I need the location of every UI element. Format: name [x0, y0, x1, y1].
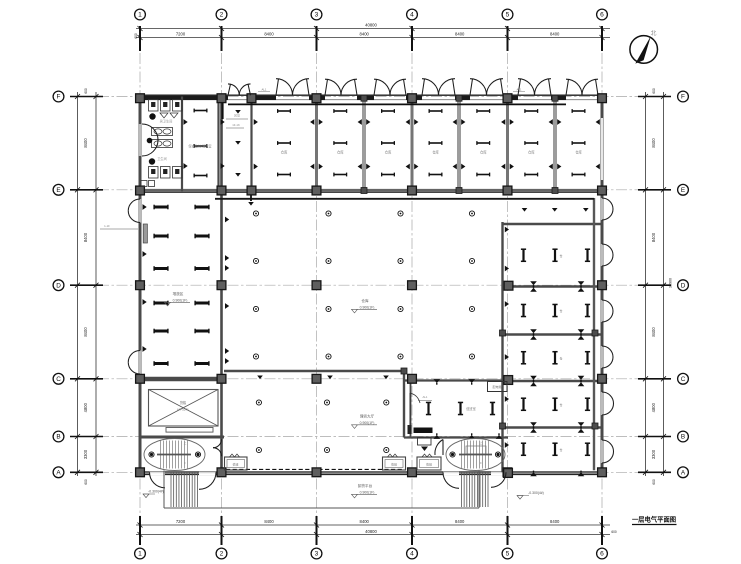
svg-text:8400: 8400	[651, 232, 656, 242]
svg-text:3300: 3300	[83, 449, 88, 459]
svg-text:仓库: 仓库	[337, 150, 344, 155]
svg-text:值班室: 值班室	[466, 406, 476, 411]
svg-text:1-1F: 1-1F	[104, 224, 110, 228]
svg-text:上: 上	[480, 441, 483, 445]
svg-text:堆放区: 堆放区	[173, 291, 184, 296]
svg-text:4800: 4800	[651, 402, 656, 412]
svg-text:3300: 3300	[651, 449, 656, 459]
svg-text:C: C	[56, 376, 61, 383]
svg-text:仓: 仓	[559, 447, 562, 452]
svg-text:600: 600	[84, 88, 88, 94]
svg-text:卸货平台: 卸货平台	[358, 483, 373, 488]
svg-text:8400: 8400	[550, 32, 560, 37]
svg-text:D: D	[56, 282, 61, 289]
svg-text:仓库: 仓库	[385, 150, 392, 155]
svg-text:上: 上	[184, 441, 187, 445]
svg-text:F: F	[184, 461, 186, 465]
svg-text:4800: 4800	[83, 402, 88, 412]
svg-text:40800: 40800	[365, 23, 377, 28]
svg-text:北: 北	[651, 29, 657, 37]
svg-text:2: 2	[220, 12, 224, 19]
svg-text:仓库: 仓库	[575, 150, 582, 155]
svg-text:B: B	[681, 434, 685, 441]
svg-text:E: E	[681, 187, 685, 194]
svg-text:C: C	[681, 376, 686, 383]
svg-text:600: 600	[652, 88, 656, 94]
svg-text:8400: 8400	[651, 327, 656, 337]
svg-text:AL1: AL1	[423, 395, 428, 399]
svg-text:仓库: 仓库	[281, 150, 288, 155]
svg-text:6: 6	[600, 551, 604, 558]
svg-text:兄见: 兄见	[234, 114, 240, 118]
svg-text:D: D	[681, 282, 686, 289]
svg-text:8400: 8400	[550, 519, 560, 524]
svg-text:600: 600	[84, 479, 88, 485]
svg-text:F: F	[681, 94, 685, 101]
svg-text:-0.300(4#): -0.300(4#)	[148, 490, 164, 494]
svg-text:7200: 7200	[176, 519, 186, 524]
svg-text:600: 600	[611, 530, 617, 534]
svg-text:仓: 仓	[559, 355, 562, 360]
svg-text:8400: 8400	[264, 519, 274, 524]
svg-text:仓库: 仓库	[480, 150, 487, 155]
svg-text:8400: 8400	[264, 32, 274, 37]
svg-text:8400: 8400	[360, 519, 370, 524]
svg-text:值班: 值班	[391, 462, 397, 467]
svg-text:1F-1K: 1F-1K	[232, 123, 240, 127]
svg-text:仓库: 仓库	[528, 150, 535, 155]
svg-text:6: 6	[600, 12, 604, 19]
svg-text:3: 3	[315, 12, 319, 19]
svg-text:A: A	[56, 470, 61, 477]
svg-text:F: F	[480, 461, 482, 465]
svg-text:8400: 8400	[651, 138, 656, 148]
svg-text:仓: 仓	[559, 253, 562, 258]
svg-text:600: 600	[134, 33, 138, 39]
svg-text:值班: 值班	[232, 462, 238, 467]
svg-text:F: F	[57, 94, 61, 101]
svg-text:8400: 8400	[455, 32, 465, 37]
svg-text:A: A	[681, 470, 686, 477]
svg-text:8400: 8400	[360, 32, 370, 37]
svg-text:0.900(1F): 0.900(1F)	[360, 305, 375, 309]
svg-text:仓库: 仓库	[361, 298, 369, 303]
svg-text:8400: 8400	[83, 138, 88, 148]
svg-text:0.900(1F): 0.900(1F)	[360, 490, 375, 494]
svg-text:33900: 33900	[669, 278, 673, 288]
svg-text:AL1: AL1	[262, 88, 267, 92]
svg-text:8400: 8400	[455, 519, 465, 524]
svg-text:0.900(1F): 0.900(1F)	[360, 421, 375, 425]
svg-text:1: 1	[138, 12, 142, 19]
svg-text:保安监控/消防室: 保安监控/消防室	[188, 144, 211, 149]
svg-text:600: 600	[652, 479, 656, 485]
svg-text:值班: 值班	[426, 462, 432, 467]
svg-text:3: 3	[315, 551, 319, 558]
svg-text:7200: 7200	[176, 32, 186, 37]
svg-text:8400: 8400	[83, 232, 88, 242]
svg-text:一层电气平面图: 一层电气平面图	[632, 514, 676, 523]
svg-text:40800: 40800	[365, 529, 377, 534]
svg-text:5: 5	[506, 12, 510, 19]
svg-text:仓: 仓	[559, 402, 562, 407]
svg-text:5: 5	[506, 551, 510, 558]
svg-text:HT-1071: HT-1071	[177, 408, 189, 412]
svg-text:货梭: 货梭	[180, 400, 187, 405]
svg-text:B: B	[56, 434, 60, 441]
svg-text:1: 1	[138, 551, 142, 558]
svg-text:仓库: 仓库	[432, 150, 439, 155]
svg-text:男卫生间: 男卫生间	[160, 119, 173, 124]
svg-text:-0.300(4#): -0.300(4#)	[528, 491, 544, 495]
svg-text:8400: 8400	[83, 327, 88, 337]
svg-text:4: 4	[410, 551, 414, 558]
svg-text:配电箱: 配电箱	[492, 384, 501, 389]
svg-text:0.900(1F): 0.900(1F)	[173, 298, 188, 302]
svg-text:卫生间: 卫生间	[157, 156, 167, 161]
svg-text:E: E	[56, 187, 60, 194]
svg-text:仓: 仓	[559, 308, 562, 313]
svg-text:理货大厅: 理货大厅	[360, 413, 375, 418]
svg-text:2: 2	[220, 551, 224, 558]
svg-text:4: 4	[410, 12, 414, 19]
